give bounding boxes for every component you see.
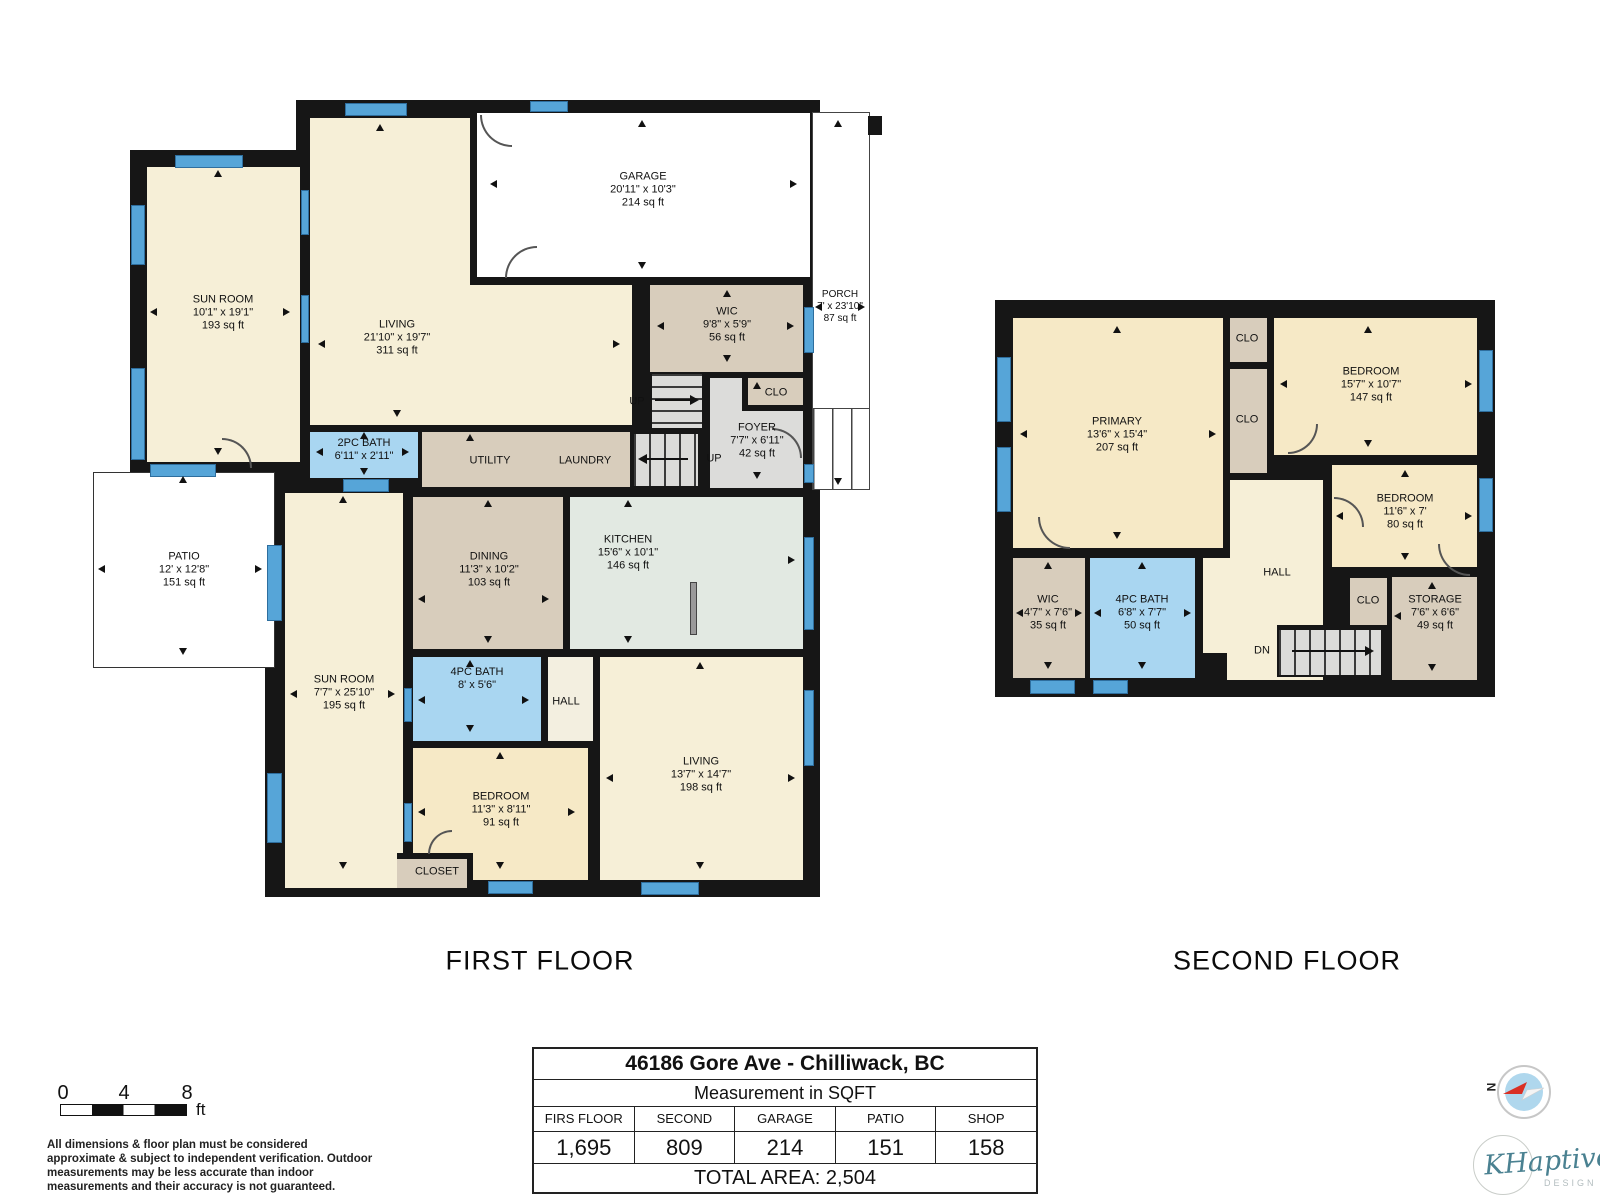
- table-value: 158: [935, 1132, 1036, 1163]
- dimension-arrow: [613, 340, 620, 348]
- dimension-arrow: [179, 648, 187, 655]
- dimension-arrow: [787, 322, 794, 330]
- room-label-2pc-bath: 2PC BATH 6'11" x 2'11": [335, 437, 394, 463]
- room-name: BEDROOM: [472, 791, 531, 804]
- room-name: FOYER: [730, 422, 783, 435]
- window: [488, 881, 533, 894]
- table-subtitle: Measurement in SQFT: [534, 1080, 1036, 1106]
- room-area: 80 sq ft: [1377, 519, 1434, 532]
- scale-tick: 8: [181, 1082, 192, 1105]
- stair-arrow-head: [1365, 646, 1374, 656]
- window: [301, 295, 309, 343]
- room-dims: 20'11" x 10'3": [610, 184, 676, 197]
- dimension-arrow: [255, 565, 262, 573]
- scale-bar-strip: [60, 1104, 187, 1116]
- room-label-clo3: CLO: [1357, 595, 1380, 608]
- window: [804, 307, 814, 353]
- dn-label: DN: [1254, 645, 1270, 658]
- stair-arrow-line: [646, 458, 688, 460]
- room-name: 2PC BATH: [335, 437, 394, 450]
- room-name: WIC: [1024, 594, 1072, 607]
- room-label-bedroom-tr: BEDROOM 15'7" x 10'7" 147 sq ft: [1341, 366, 1401, 405]
- room-area: 50 sq ft: [1116, 620, 1169, 633]
- room-area: 56 sq ft: [703, 332, 751, 345]
- room-label-closet: CLOSET: [415, 866, 459, 879]
- dimension-arrow: [753, 472, 761, 479]
- dimension-arrow: [150, 308, 157, 316]
- room-area: 35 sq ft: [1024, 620, 1072, 633]
- dimension-arrow: [606, 774, 613, 782]
- dimension-arrow: [496, 752, 504, 759]
- window: [641, 882, 699, 895]
- dimension-arrow: [316, 448, 323, 456]
- dimension-arrow: [418, 595, 425, 603]
- scale-tick: 0: [57, 1082, 68, 1105]
- table-header: PATIO: [835, 1107, 936, 1131]
- room-name: CLO: [1357, 595, 1380, 608]
- dimension-arrow: [753, 382, 761, 389]
- stairs-label-dn: DN: [1254, 645, 1270, 658]
- room-area: 198 sq ft: [671, 782, 731, 795]
- room-name: CLO: [765, 387, 788, 400]
- table-value: 151: [835, 1132, 936, 1163]
- room-name: HALL: [552, 696, 580, 709]
- dimension-arrow: [290, 690, 297, 698]
- dimension-arrow: [1364, 326, 1372, 333]
- dimension-arrow: [214, 448, 222, 455]
- dimension-arrow: [1094, 609, 1101, 617]
- room-label-living: LIVING 21'10" x 19'7" 311 sq ft: [364, 319, 430, 358]
- room-label-garage: GARAGE 20'11" x 10'3" 214 sq ft: [610, 171, 676, 210]
- room-label-sunroom2: SUN ROOM 7'7" x 25'10" 195 sq ft: [314, 674, 375, 713]
- dimension-arrow: [1401, 470, 1409, 477]
- window: [131, 205, 145, 265]
- window: [530, 101, 568, 112]
- room-dims: 21'10" x 19'7": [364, 332, 430, 345]
- dimension-arrow: [339, 862, 347, 869]
- dimension-arrow: [638, 262, 646, 269]
- dimension-arrow: [484, 636, 492, 643]
- room-name: GARAGE: [610, 171, 676, 184]
- dimension-arrow: [624, 636, 632, 643]
- window: [343, 479, 389, 492]
- room-label-kitchen: KITCHEN 15'6" x 10'1" 146 sq ft: [598, 534, 658, 573]
- window: [1479, 350, 1493, 412]
- window: [997, 447, 1011, 512]
- room-label-wic2: WIC 4'7" x 7'6" 35 sq ft: [1024, 594, 1072, 633]
- room-name: BEDROOM: [1341, 366, 1401, 379]
- table-value: 1,695: [534, 1132, 634, 1163]
- dimension-arrow: [466, 725, 474, 732]
- logo-subtitle: DESIGN: [1544, 1178, 1597, 1188]
- dimension-arrow: [788, 556, 795, 564]
- dimension-arrow: [360, 468, 368, 475]
- room-dims: 4'7" x 7'6": [1024, 607, 1072, 620]
- dimension-arrow: [418, 808, 425, 816]
- dimension-arrow: [1336, 512, 1343, 520]
- window: [404, 688, 412, 722]
- window: [804, 537, 814, 630]
- room-area: 207 sq ft: [1087, 442, 1147, 455]
- stair-arrow-head: [690, 395, 699, 405]
- room-label-wic: WIC 9'8" x 5'9" 56 sq ft: [703, 306, 751, 345]
- dimension-arrow: [1394, 612, 1401, 620]
- dimension-arrow: [1364, 440, 1372, 447]
- dimension-arrow: [522, 696, 529, 704]
- compass-icon: [1496, 1064, 1552, 1120]
- room-label-bedroom: BEDROOM 11'3" x 8'11" 91 sq ft: [472, 791, 531, 830]
- room-label-storage: STORAGE 7'6" x 6'6" 49 sq ft: [1408, 594, 1462, 633]
- dimension-arrow: [1138, 562, 1146, 569]
- window: [804, 464, 814, 483]
- dimension-arrow: [179, 476, 187, 483]
- room-label-sunroom1: SUN ROOM 10'1" x 19'1" 193 sq ft: [193, 294, 254, 333]
- room-name: WIC: [703, 306, 751, 319]
- window: [1479, 478, 1493, 532]
- dimension-arrow: [1016, 609, 1023, 617]
- window: [175, 155, 243, 168]
- dimension-arrow: [1465, 380, 1472, 388]
- room-dims: 7' x 23'10": [817, 301, 863, 313]
- scale-unit: ft: [196, 1100, 205, 1120]
- room-dims: 6'11" x 2'11": [335, 450, 394, 463]
- dimension-arrow: [318, 340, 325, 348]
- room-dims: 13'6" x 15'4": [1087, 429, 1147, 442]
- up-label: UP: [629, 396, 644, 409]
- room-area: 49 sq ft: [1408, 620, 1462, 633]
- room-label-dining: DINING 11'3" x 10'2" 103 sq ft: [459, 551, 519, 590]
- room-name: LIVING: [364, 319, 430, 332]
- disclaimer-text: All dimensions & floor plan must be cons…: [47, 1138, 377, 1194]
- room-label-utility: UTILITY: [470, 455, 511, 468]
- room-area: 42 sq ft: [730, 448, 783, 461]
- dimension-arrow: [1113, 532, 1121, 539]
- room-label-laundry: LAUNDRY: [559, 455, 611, 468]
- room-name: KITCHEN: [598, 534, 658, 547]
- room-label-clo: CLO: [765, 387, 788, 400]
- room-dims: 15'7" x 10'7": [1341, 379, 1401, 392]
- room-dims: 7'7" x 6'11": [730, 435, 783, 448]
- room-label-living2: LIVING 13'7" x 14'7" 198 sq ft: [671, 756, 731, 795]
- dimension-arrow: [466, 434, 474, 441]
- room-area: 91 sq ft: [472, 817, 531, 830]
- dimension-arrow: [834, 478, 842, 485]
- room-name: CLOSET: [415, 866, 459, 879]
- room-label-clo-mid: CLO: [1236, 414, 1259, 427]
- window: [1093, 680, 1128, 694]
- room-dims: 11'6" x 7': [1377, 506, 1434, 519]
- stairs-label-up2: UP: [706, 453, 721, 466]
- dimension-arrow: [624, 500, 632, 507]
- dimension-arrow: [1465, 512, 1472, 520]
- room-dims: 11'3" x 10'2": [459, 564, 519, 577]
- room-dims: 10'1" x 19'1": [193, 307, 254, 320]
- up-label: UP: [706, 453, 721, 466]
- dimension-arrow: [1280, 380, 1287, 388]
- first-floor-title: FIRST FLOOR: [445, 946, 634, 977]
- north-label: N: [1484, 1083, 1498, 1092]
- window: [997, 357, 1011, 422]
- dimension-arrow: [723, 355, 731, 362]
- room-area: 214 sq ft: [610, 197, 676, 210]
- dimension-arrow: [723, 290, 731, 297]
- dimension-arrow: [696, 662, 704, 669]
- table-value: 809: [634, 1132, 735, 1163]
- room-dims: 9'8" x 5'9": [703, 319, 751, 332]
- dimension-arrow: [1428, 582, 1436, 589]
- table-header: SECOND FLOOR: [634, 1107, 735, 1131]
- dimension-arrow: [1044, 562, 1052, 569]
- room-name: PATIO: [159, 551, 209, 564]
- room-name: CLO: [1236, 333, 1259, 346]
- dimension-arrow: [484, 500, 492, 507]
- table-header: SHOP: [935, 1107, 1036, 1131]
- table-header: GARAGE: [734, 1107, 835, 1131]
- dimension-arrow: [1044, 662, 1052, 669]
- room-label-foyer: FOYER 7'7" x 6'11" 42 sq ft: [730, 422, 783, 461]
- window: [301, 190, 309, 235]
- room-name: HALL: [1263, 567, 1291, 580]
- room-name: 4PC BATH: [451, 666, 504, 679]
- room-name: SUN ROOM: [193, 294, 254, 307]
- dimension-arrow: [1428, 664, 1436, 671]
- wall-block: [1203, 653, 1227, 680]
- dimension-arrow: [834, 120, 842, 127]
- room-name: PRIMARY: [1087, 416, 1147, 429]
- room-area: 151 sq ft: [159, 577, 209, 590]
- table-title: 46186 Gore Ave - Chilliwack, BC: [534, 1049, 1036, 1079]
- dimension-arrow: [1401, 553, 1409, 560]
- window: [267, 545, 282, 621]
- stair-arrow-line: [1292, 650, 1366, 652]
- dimension-arrow: [657, 322, 664, 330]
- dimension-arrow: [418, 696, 425, 704]
- dimension-arrow: [696, 862, 704, 869]
- second-floor-title: SECOND FLOOR: [1173, 946, 1401, 977]
- room-name: PORCH: [817, 289, 863, 301]
- room-name: SUN ROOM: [314, 674, 375, 687]
- dimension-arrow: [388, 690, 395, 698]
- room-area: 146 sq ft: [598, 560, 658, 573]
- table-value: 214: [734, 1132, 835, 1163]
- room-name: STORAGE: [1408, 594, 1462, 607]
- dimension-arrow: [214, 170, 222, 177]
- room-label-hall2: HALL: [1263, 567, 1291, 580]
- room-dims: 7'7" x 25'10": [314, 687, 375, 700]
- room-name: 4PC BATH: [1116, 594, 1169, 607]
- dimension-arrow: [496, 862, 504, 869]
- stairs-label-up1: UP: [629, 396, 644, 409]
- dimension-arrow: [638, 120, 646, 127]
- dimension-arrow: [376, 124, 384, 131]
- room-dims: 15'6" x 10'1": [598, 547, 658, 560]
- room-area: 195 sq ft: [314, 700, 375, 713]
- kitchen-counter: [690, 582, 697, 635]
- room-dims: 13'7" x 14'7": [671, 769, 731, 782]
- room-label-patio: PATIO 12' x 12'8" 151 sq ft: [159, 551, 209, 590]
- table-header: FIRS FLOOR: [534, 1107, 634, 1131]
- room-area: 193 sq ft: [193, 320, 254, 333]
- dimension-arrow: [98, 565, 105, 573]
- dimension-arrow: [542, 595, 549, 603]
- room-living-main: [310, 285, 632, 425]
- room-dims: 8' x 5'6": [451, 679, 504, 692]
- dimension-arrow: [1113, 326, 1121, 333]
- room-label-clo-top: CLO: [1236, 333, 1259, 346]
- room-label-4pc-bath: 4PC BATH 8' x 5'6": [451, 666, 504, 692]
- room-dims: 12' x 12'8": [159, 564, 209, 577]
- wall-block: [868, 116, 882, 135]
- scale-tick: 4: [118, 1082, 129, 1105]
- dimension-arrow: [490, 180, 497, 188]
- stair-arrow-head: [638, 454, 647, 464]
- dimension-arrow: [1184, 609, 1191, 617]
- room-name: CLO: [1236, 414, 1259, 427]
- room-living-upper: [310, 118, 470, 285]
- room-dims: 6'8" x 7'7": [1116, 607, 1169, 620]
- window: [267, 773, 282, 843]
- dimension-arrow: [393, 410, 401, 417]
- room-label-4pc-bath2: 4PC BATH 6'8" x 7'7" 50 sq ft: [1116, 594, 1169, 633]
- dimension-arrow: [402, 448, 409, 456]
- dimension-arrow: [339, 496, 347, 503]
- window: [1030, 680, 1075, 694]
- room-label-primary: PRIMARY 13'6" x 15'4" 207 sq ft: [1087, 416, 1147, 455]
- summary-table: 46186 Gore Ave - Chilliwack, BC Measurem…: [532, 1047, 1038, 1194]
- dimension-arrow: [568, 808, 575, 816]
- room-name: DINING: [459, 551, 519, 564]
- window: [345, 103, 407, 116]
- room-name: UTILITY: [470, 455, 511, 468]
- floor-plan-page: SUN ROOM 10'1" x 19'1" 193 sq ft LIVING …: [0, 0, 1600, 1200]
- room-area: 103 sq ft: [459, 577, 519, 590]
- room-name: BEDROOM: [1377, 493, 1434, 506]
- room-kitchen: [570, 497, 803, 649]
- room-hall2a: [1230, 480, 1323, 567]
- room-label-porch: PORCH 7' x 23'10" 87 sq ft: [817, 289, 863, 325]
- table-total: TOTAL AREA: 2,504: [534, 1164, 1036, 1192]
- dimension-arrow: [1075, 609, 1082, 617]
- window: [804, 690, 814, 766]
- room-label-hall: HALL: [552, 696, 580, 709]
- room-dims: 11'3" x 8'11": [472, 804, 531, 817]
- stair-arrow-line: [655, 399, 691, 401]
- room-area: 311 sq ft: [364, 345, 430, 358]
- dimension-arrow: [283, 308, 290, 316]
- dimension-arrow: [788, 774, 795, 782]
- dimension-arrow: [1020, 430, 1027, 438]
- window: [404, 803, 412, 842]
- room-area: 87 sq ft: [817, 313, 863, 325]
- dimension-arrow: [1209, 430, 1216, 438]
- dimension-arrow: [790, 180, 797, 188]
- room-label-bedroom-r: BEDROOM 11'6" x 7' 80 sq ft: [1377, 493, 1434, 532]
- room-area: 147 sq ft: [1341, 392, 1401, 405]
- room-name: LAUNDRY: [559, 455, 611, 468]
- room-dims: 7'6" x 6'6": [1408, 607, 1462, 620]
- dimension-arrow: [1138, 662, 1146, 669]
- room-name: LIVING: [671, 756, 731, 769]
- window: [131, 368, 145, 460]
